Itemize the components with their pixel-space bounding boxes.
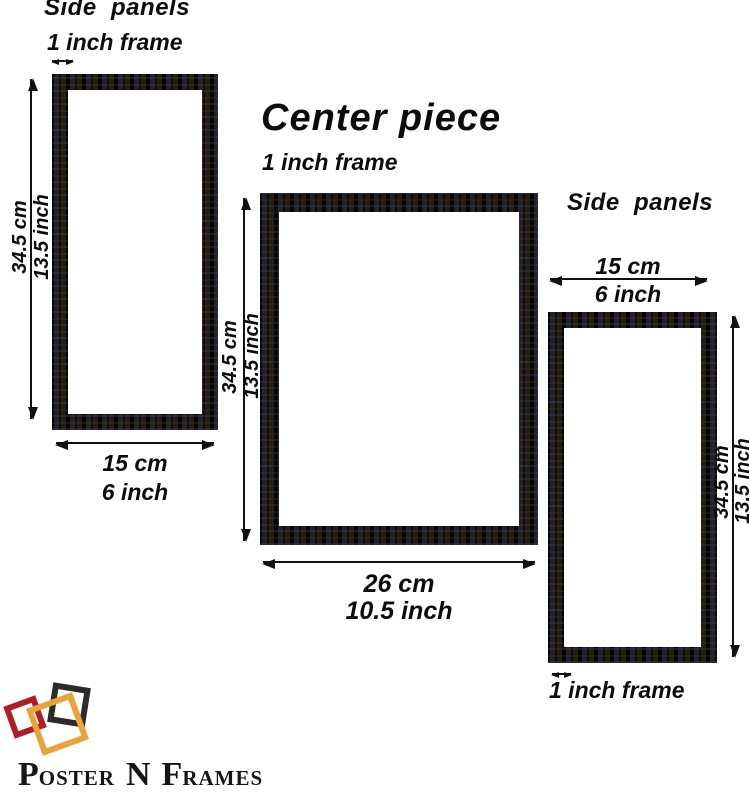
center-frame-width-cm-label: 26 cm — [260, 571, 538, 598]
left-frame-width-arrow — [56, 442, 214, 444]
left-frame-width-inch-label: 6 inch — [52, 480, 218, 505]
canvas: Side panels 1 inch frame 34.5 cm 13.5 in… — [0, 0, 750, 773]
left-frame-height-inch-label: 13.5 inch — [32, 194, 54, 280]
left-frame-width-cm-label: 15 cm — [52, 451, 218, 476]
logo-text-oster: OSTER — [39, 766, 115, 790]
center-frame-height-cm-label: 34.5 cm — [220, 320, 242, 393]
left-section-title: Side panels — [44, 0, 190, 21]
left-frame-thickness-arrow-icon — [52, 60, 73, 62]
right-frame-thickness-label: 1 inch frame — [549, 678, 685, 703]
logo-letter-p: P — [18, 756, 39, 793]
right-frame-width-cm-label: 15 cm — [548, 254, 708, 279]
right-frame-width-arrow — [550, 278, 707, 280]
logo-text-rames: RAMES — [182, 766, 263, 790]
right-frame-width-inch-label: 6 inch — [548, 282, 708, 307]
right-side-panel-frame — [548, 312, 717, 663]
logo-letter-n: N — [126, 756, 151, 793]
right-frame-thickness-arrow-icon — [552, 673, 571, 675]
center-piece-frame — [260, 193, 538, 545]
frame-set-diagram: { "left_section": { "title": "Side panel… — [0, 0, 750, 773]
left-side-panel-frame — [52, 74, 218, 430]
center-frame-height-inch-label: 13.5 inch — [242, 313, 264, 399]
center-section-title: Center piece — [261, 98, 501, 139]
left-frame-thickness-label: 1 inch frame — [47, 30, 183, 55]
left-frame-opening — [68, 90, 202, 414]
right-section-title: Side panels — [567, 190, 713, 216]
right-frame-height-inch-label: 13.5 inch — [733, 438, 750, 524]
right-frame-opening — [564, 328, 701, 647]
center-frame-width-inch-label: 10.5 inch — [260, 598, 538, 625]
center-frame-width-arrow — [263, 561, 535, 563]
right-frame-height-cm-label: 34.5 cm — [712, 445, 734, 518]
left-frame-height-cm-label: 34.5 cm — [10, 200, 32, 273]
center-frame-thickness-label: 1 inch frame — [262, 150, 398, 175]
logo-letter-f: F — [162, 756, 183, 793]
center-frame-opening — [279, 212, 519, 526]
